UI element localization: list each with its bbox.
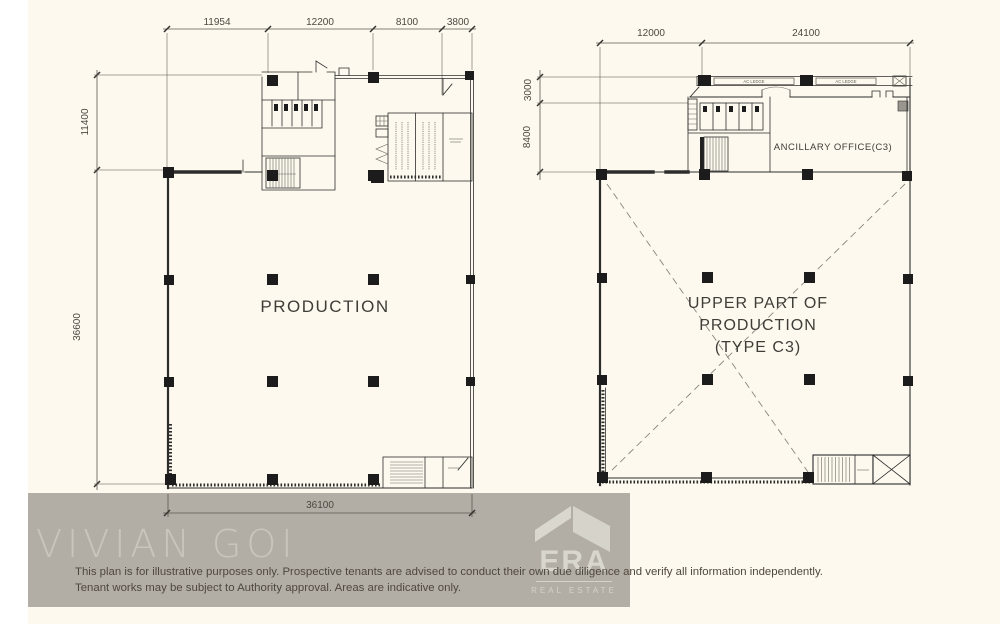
dim-label: 12200 — [306, 17, 334, 28]
dim-label: 3800 — [447, 17, 470, 28]
dim-label: 3000 — [523, 78, 534, 101]
dim-label: 24100 — [792, 28, 820, 39]
right-plan-void-cross — [607, 184, 905, 472]
left-plan-walls — [168, 68, 474, 488]
svg-text:(TYPE C3): (TYPE C3) — [715, 339, 801, 356]
left-plan-cargo-lift-block — [371, 113, 472, 183]
left-plan-top-dimensions: 11954 12200 8100 3800 — [163, 17, 476, 168]
ancillary-office-label: ANCILLARY OFFICE(C3) — [774, 142, 892, 153]
floor-plan-page: { "left_plan": { "room_label": "PRODUCTI… — [0, 0, 1000, 624]
ac-ledge-label: AC LEDGE — [835, 79, 856, 84]
left-margin — [0, 0, 28, 624]
left-floor-plan: 11954 12200 8100 3800 11400 36600 36100 — [72, 17, 476, 517]
right-plan-columns — [596, 169, 913, 483]
right-plan-hall-walls — [600, 78, 910, 485]
disclaimer-text: This plan is for illustrative purposes o… — [75, 565, 823, 596]
right-plan-top-dimensions: 12000 24100 — [596, 28, 914, 170]
disclaimer-line-2: Tenant works may be subject to Authority… — [75, 581, 823, 597]
left-plan-stair-room — [383, 457, 472, 488]
left-plan-columns — [163, 71, 475, 485]
dim-label: 8100 — [396, 17, 419, 28]
right-plan-office-core — [688, 87, 910, 172]
right-plan-ac-ledge-wall: AC LEDGE AC LEDGE — [697, 75, 912, 86]
disclaimer-line-1: This plan is for illustrative purposes o… — [75, 565, 823, 581]
svg-text:PRODUCTION: PRODUCTION — [699, 317, 817, 334]
left-plan-left-dimensions: 11400 36600 — [72, 70, 262, 490]
left-plan-core-block — [262, 61, 335, 190]
dim-label: 12000 — [637, 28, 665, 39]
upper-production-label: UPPER PART OF PRODUCTION (TYPE C3) — [688, 295, 828, 356]
right-floor-plan: 12000 24100 3000 8400 AC LEDGE AC LEDGE — [522, 28, 914, 485]
dim-label: 11954 — [203, 17, 231, 28]
dim-label: 8400 — [522, 125, 533, 148]
production-room-label: PRODUCTION — [260, 297, 389, 316]
svg-text:UPPER PART OF: UPPER PART OF — [688, 295, 828, 312]
agent-watermark: VIVIAN GOI — [36, 522, 297, 566]
dim-label: 36600 — [72, 313, 83, 341]
right-plan-left-dimensions: 3000 8400 — [522, 70, 697, 180]
dim-label: 11400 — [80, 108, 91, 136]
ac-ledge-label: AC LEDGE — [743, 79, 764, 84]
right-plan-stair-lift — [813, 455, 910, 484]
